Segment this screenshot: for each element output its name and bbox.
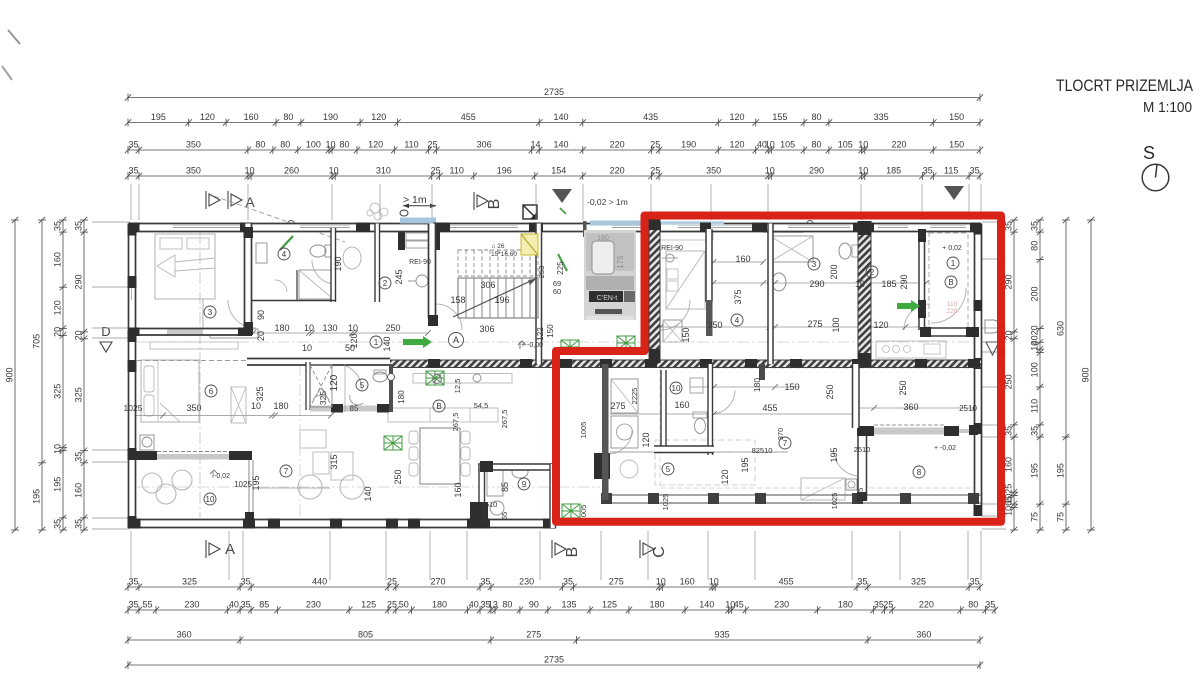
svg-text:275: 275 [526, 630, 541, 640]
svg-text:225: 225 [556, 261, 565, 275]
svg-text:60: 60 [553, 287, 561, 296]
svg-text:220: 220 [947, 308, 958, 315]
svg-text:150: 150 [681, 327, 691, 342]
svg-text:4: 4 [282, 250, 287, 259]
svg-text:65: 65 [500, 512, 509, 520]
svg-text:90: 90 [529, 600, 539, 610]
svg-text:370: 370 [776, 428, 785, 441]
svg-text:160: 160 [735, 254, 750, 264]
svg-text:75: 75 [1030, 512, 1040, 522]
svg-text:100: 100 [306, 140, 321, 150]
svg-text:140: 140 [363, 486, 373, 501]
svg-text:REI-90: REI-90 [409, 259, 431, 266]
svg-text:100: 100 [1030, 362, 1040, 377]
svg-text:250: 250 [385, 323, 400, 333]
svg-text:8: 8 [917, 468, 922, 477]
svg-text:50: 50 [399, 600, 409, 610]
svg-text:> 1m: > 1m [403, 194, 427, 206]
svg-text:D: D [101, 324, 110, 339]
svg-text:S: S [1143, 143, 1155, 163]
svg-text:150: 150 [546, 324, 555, 338]
svg-text:20: 20 [53, 327, 63, 337]
svg-text:180: 180 [838, 600, 853, 610]
svg-text:195: 195 [740, 457, 750, 472]
svg-text:35: 35 [53, 221, 63, 231]
svg-text:25: 25 [427, 140, 437, 150]
svg-text:10: 10 [302, 343, 312, 353]
svg-text:35: 35 [241, 577, 251, 587]
svg-text:120: 120 [200, 112, 215, 122]
svg-text:10: 10 [325, 140, 335, 150]
svg-text:180: 180 [397, 390, 406, 404]
svg-text:267,5: 267,5 [500, 410, 509, 429]
svg-text:B: B [486, 199, 503, 210]
svg-text:80: 80 [283, 112, 293, 122]
svg-text:306: 306 [479, 324, 494, 334]
svg-text:805: 805 [358, 630, 373, 640]
svg-text:5: 5 [666, 465, 671, 474]
svg-text:375: 375 [733, 289, 743, 304]
svg-text:A: A [225, 541, 235, 558]
svg-text:325: 325 [255, 386, 265, 401]
svg-text:196: 196 [497, 166, 512, 176]
svg-text:200: 200 [1030, 286, 1040, 301]
svg-text:455: 455 [779, 577, 794, 587]
svg-text:122: 122 [536, 327, 545, 341]
svg-text:35: 35 [53, 519, 63, 529]
svg-text:1025: 1025 [661, 494, 670, 511]
svg-text:10: 10 [855, 279, 865, 289]
svg-text:325: 325 [53, 384, 63, 399]
svg-text:10: 10 [858, 166, 868, 176]
svg-text:160: 160 [674, 400, 689, 410]
svg-text:15*16,60: 15*16,60 [491, 251, 517, 258]
svg-text:1: 1 [951, 259, 956, 268]
svg-text:105: 105 [780, 140, 795, 150]
svg-text:⌂ 26: ⌂ 26 [492, 243, 505, 250]
svg-text:1: 1 [374, 338, 379, 347]
svg-text:154: 154 [551, 166, 566, 176]
svg-text:12,5: 12,5 [453, 379, 462, 394]
svg-text:180: 180 [649, 600, 664, 610]
svg-text:B: B [436, 402, 441, 411]
svg-text:250: 250 [898, 380, 908, 395]
svg-text:35: 35 [74, 452, 84, 462]
svg-text:54,5: 54,5 [474, 401, 489, 410]
svg-text:80: 80 [280, 140, 290, 150]
svg-text:2735: 2735 [544, 655, 564, 665]
svg-text:25: 25 [883, 600, 893, 610]
svg-text:140: 140 [699, 600, 714, 610]
svg-text:25: 25 [387, 577, 397, 587]
svg-text:40: 40 [229, 600, 239, 610]
svg-text:195: 195 [829, 447, 839, 462]
svg-text:10: 10 [206, 495, 215, 504]
svg-text:140: 140 [553, 112, 568, 122]
svg-text:10: 10 [709, 577, 719, 587]
svg-text:2225: 2225 [630, 388, 639, 405]
svg-text:TLOCRT PRIZEMLJA: TLOCRT PRIZEMLJA [1056, 76, 1194, 95]
svg-text:120: 120 [349, 333, 359, 348]
svg-text:85: 85 [259, 600, 269, 610]
svg-text:35: 35 [857, 577, 867, 587]
svg-text:270: 270 [430, 577, 445, 587]
svg-text:10: 10 [53, 444, 63, 454]
svg-text:10: 10 [765, 166, 775, 176]
svg-text:160: 160 [74, 483, 84, 498]
svg-text:150: 150 [784, 382, 799, 392]
svg-text:290: 290 [809, 166, 824, 176]
svg-text:125: 125 [361, 600, 376, 610]
svg-text:350: 350 [186, 140, 201, 150]
svg-text:B: B [948, 278, 953, 287]
svg-text:110: 110 [947, 301, 958, 308]
svg-text:115: 115 [944, 166, 958, 176]
svg-text:120: 120 [720, 469, 730, 484]
svg-text:325: 325 [74, 387, 84, 402]
svg-text:900: 900 [5, 367, 15, 382]
svg-text:125: 125 [602, 600, 617, 610]
svg-text:35: 35 [128, 140, 138, 150]
svg-text:245: 245 [394, 269, 404, 284]
svg-text:195: 195 [251, 475, 261, 490]
svg-text:160: 160 [244, 112, 259, 122]
svg-text:120: 120 [53, 300, 63, 315]
svg-text:350: 350 [186, 403, 201, 413]
svg-text:80: 80 [502, 600, 512, 610]
svg-text:325: 325 [318, 391, 328, 405]
svg-text:45: 45 [734, 600, 744, 610]
svg-text:190: 190 [333, 256, 343, 271]
svg-text:35: 35 [985, 600, 995, 610]
svg-text:275: 275 [610, 401, 625, 411]
svg-text:190: 190 [323, 112, 338, 122]
svg-text:13: 13 [488, 600, 498, 610]
svg-text:110: 110 [404, 140, 418, 150]
svg-text:230: 230 [519, 577, 534, 587]
svg-text:360: 360 [916, 630, 931, 640]
svg-text:350: 350 [706, 166, 721, 176]
svg-text:10: 10 [304, 323, 314, 333]
svg-text:110: 110 [1030, 399, 1040, 413]
svg-text:175: 175 [616, 255, 625, 269]
svg-text:A: A [453, 335, 459, 345]
svg-text:195: 195 [1056, 463, 1066, 478]
svg-text:REI-90: REI-90 [661, 245, 683, 252]
svg-text:360: 360 [903, 402, 918, 412]
svg-text:35: 35 [480, 577, 490, 587]
svg-text:230: 230 [306, 600, 321, 610]
svg-text:160: 160 [680, 577, 695, 587]
svg-text:10: 10 [765, 140, 775, 150]
svg-text:150: 150 [949, 140, 964, 150]
svg-text:80: 80 [339, 140, 349, 150]
svg-text:306: 306 [480, 280, 495, 290]
svg-text:350: 350 [186, 166, 201, 176]
svg-text:455: 455 [762, 403, 777, 413]
svg-text:120: 120 [368, 140, 383, 150]
svg-text:158: 158 [450, 295, 465, 305]
svg-text:25: 25 [650, 140, 660, 150]
svg-text:155: 155 [772, 112, 787, 122]
svg-text:630: 630 [1056, 321, 1066, 336]
svg-text:7: 7 [284, 467, 289, 476]
svg-text:253: 253 [537, 266, 546, 279]
svg-text:85: 85 [350, 404, 359, 413]
svg-text:220: 220 [919, 600, 934, 610]
svg-text:935: 935 [715, 630, 730, 640]
svg-text:220: 220 [891, 140, 906, 150]
svg-text:180: 180 [432, 600, 447, 610]
svg-text:10: 10 [656, 577, 666, 587]
svg-text:310: 310 [376, 166, 391, 176]
svg-text:185: 185 [881, 279, 896, 289]
svg-text:35: 35 [970, 577, 980, 587]
svg-text:10: 10 [348, 323, 358, 333]
svg-text:3: 3 [812, 260, 817, 269]
svg-text:160: 160 [53, 252, 63, 267]
svg-text:105: 105 [838, 140, 853, 150]
svg-text:250: 250 [825, 384, 835, 399]
svg-text:160: 160 [597, 235, 609, 242]
svg-text:290: 290 [809, 279, 824, 289]
svg-text:1005: 1005 [579, 422, 588, 439]
svg-text:120: 120 [729, 140, 744, 150]
svg-text:195: 195 [53, 477, 63, 492]
svg-text:80: 80 [811, 140, 821, 150]
svg-text:85: 85 [500, 482, 510, 492]
svg-text:315: 315 [329, 454, 339, 469]
svg-text:35: 35 [923, 166, 933, 176]
svg-text:325: 325 [182, 577, 197, 587]
svg-text:1025: 1025 [234, 480, 252, 489]
svg-text:440: 440 [312, 577, 327, 587]
svg-text:35: 35 [128, 577, 138, 587]
svg-text:2510: 2510 [959, 404, 977, 413]
svg-text:120: 120 [873, 320, 888, 330]
svg-text:10: 10 [672, 384, 681, 393]
svg-text:75: 75 [1056, 512, 1066, 522]
svg-text:C'EN-t: C'EN-t [597, 295, 617, 302]
svg-text:14: 14 [530, 140, 540, 150]
svg-text:10: 10 [251, 401, 261, 411]
svg-text:220: 220 [610, 166, 625, 176]
svg-text:90: 90 [256, 310, 266, 320]
svg-text:110: 110 [450, 166, 464, 176]
svg-text:135: 135 [561, 600, 576, 610]
svg-text:200: 200 [829, 264, 839, 279]
svg-text:705: 705 [32, 334, 42, 349]
svg-text:185: 185 [886, 166, 901, 176]
svg-text:9: 9 [522, 480, 527, 489]
svg-text:290: 290 [899, 274, 909, 289]
svg-text:20: 20 [74, 330, 84, 340]
svg-text:140: 140 [553, 140, 568, 150]
svg-text:+ 0,02: + 0,02 [942, 245, 962, 252]
svg-text:80: 80 [255, 140, 265, 150]
svg-text:10: 10 [1030, 341, 1040, 351]
svg-text:3: 3 [208, 308, 213, 317]
svg-text:180: 180 [273, 401, 288, 411]
svg-text:35: 35 [1030, 221, 1040, 231]
svg-text:35: 35 [1030, 426, 1040, 436]
svg-text:290: 290 [74, 274, 84, 289]
svg-text:120: 120 [329, 374, 340, 391]
svg-text:10: 10 [329, 166, 339, 176]
svg-text:160: 160 [453, 482, 463, 497]
svg-text:55: 55 [142, 600, 152, 610]
svg-text:80: 80 [811, 112, 821, 122]
svg-text:120: 120 [729, 112, 744, 122]
svg-text:5: 5 [360, 381, 365, 390]
svg-text:10: 10 [244, 166, 254, 176]
svg-text:275: 275 [807, 319, 822, 329]
svg-text:+ -0,02: + -0,02 [934, 445, 956, 452]
svg-text:120: 120 [641, 432, 651, 447]
svg-text:80: 80 [1030, 241, 1040, 251]
svg-text:M 1:100: M 1:100 [1143, 99, 1192, 116]
svg-text:275: 275 [609, 577, 624, 587]
svg-text:190: 190 [681, 140, 696, 150]
svg-text:180: 180 [274, 323, 289, 333]
svg-text:35: 35 [241, 600, 251, 610]
svg-text:900: 900 [1081, 367, 1091, 382]
svg-text:130: 130 [322, 323, 337, 333]
svg-text:35: 35 [74, 519, 84, 529]
svg-text:325: 325 [911, 577, 926, 587]
svg-text:335: 335 [874, 112, 889, 122]
svg-text:195: 195 [151, 112, 166, 122]
svg-text:35: 35 [74, 221, 84, 231]
svg-text:80: 80 [968, 600, 978, 610]
svg-text:140: 140 [382, 336, 392, 351]
svg-text:195: 195 [1030, 463, 1040, 478]
svg-text:B: B [564, 547, 581, 558]
svg-text:150: 150 [949, 112, 964, 122]
svg-text:2510: 2510 [854, 445, 871, 454]
svg-text:2: 2 [383, 279, 388, 288]
svg-text:195: 195 [32, 489, 42, 504]
svg-text:25: 25 [431, 166, 441, 176]
svg-text:25: 25 [387, 600, 397, 610]
svg-text:267,5: 267,5 [451, 413, 460, 432]
svg-text:230: 230 [774, 600, 789, 610]
svg-text:20: 20 [256, 331, 266, 341]
svg-text:435: 435 [643, 112, 658, 122]
svg-text:40: 40 [469, 600, 479, 610]
svg-text:4: 4 [735, 316, 740, 325]
svg-text:2735: 2735 [544, 87, 564, 97]
svg-text:82510: 82510 [752, 446, 773, 455]
svg-text:35: 35 [128, 166, 138, 176]
svg-text:230: 230 [184, 600, 199, 610]
svg-text:455: 455 [461, 112, 476, 122]
svg-text:196: 196 [494, 295, 509, 305]
svg-text:360: 360 [177, 630, 192, 640]
svg-text:120: 120 [371, 112, 386, 122]
svg-text:35: 35 [970, 166, 980, 176]
svg-text:220: 220 [610, 140, 625, 150]
svg-text:1025: 1025 [124, 403, 143, 413]
svg-text:35: 35 [563, 577, 573, 587]
svg-text:35: 35 [128, 600, 138, 610]
svg-text:25: 25 [650, 166, 660, 176]
svg-text:180: 180 [752, 378, 762, 392]
svg-text:-0,02: -0,02 [214, 473, 230, 480]
svg-text:250: 250 [393, 469, 403, 484]
svg-text:2: 2 [870, 268, 875, 277]
svg-text:-0,02 > 1m: -0,02 > 1m [587, 197, 628, 207]
svg-text:1025: 1025 [830, 493, 839, 510]
svg-text:1065: 1065 [479, 506, 488, 523]
svg-text:C: C [651, 546, 668, 558]
svg-text:6: 6 [209, 387, 214, 396]
svg-text:1025: 1025 [856, 488, 865, 505]
svg-text:306: 306 [477, 140, 492, 150]
svg-text:350: 350 [707, 320, 722, 330]
svg-text:100: 100 [831, 317, 841, 332]
svg-text:10: 10 [858, 140, 868, 150]
svg-text:260: 260 [284, 166, 299, 176]
